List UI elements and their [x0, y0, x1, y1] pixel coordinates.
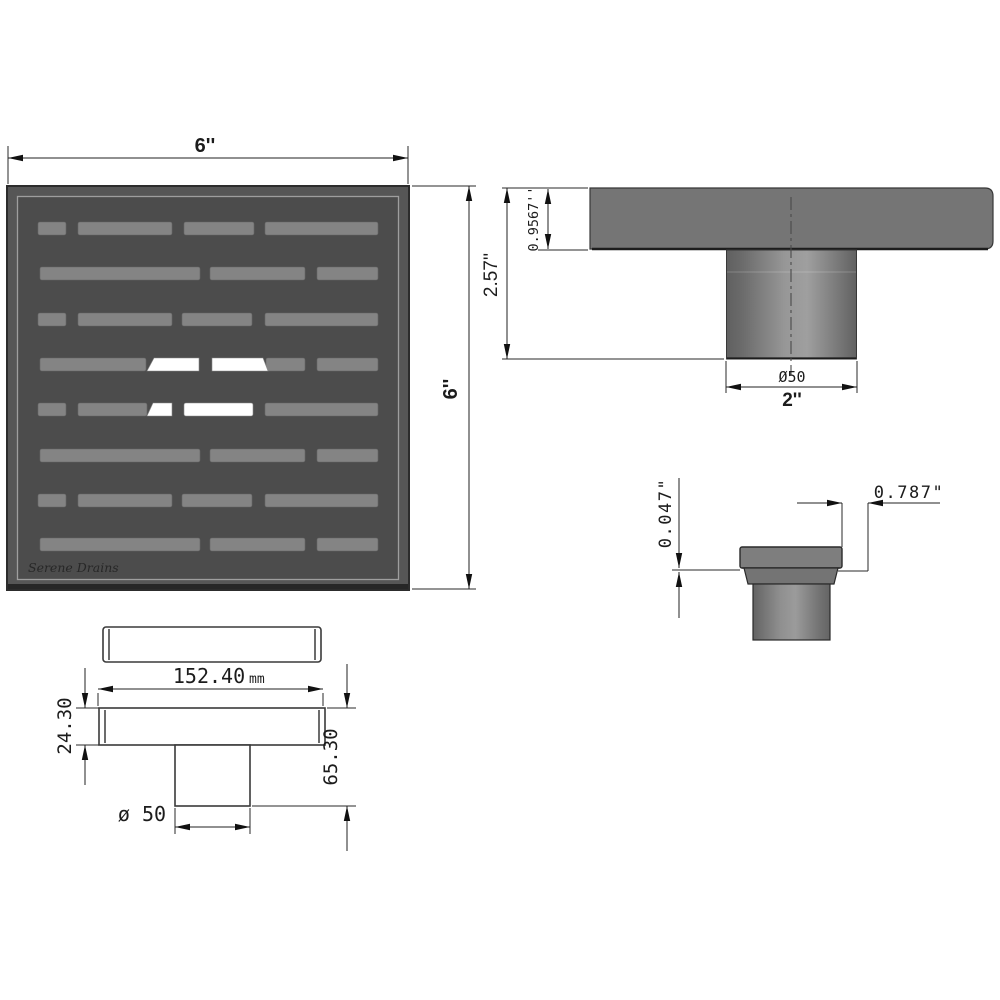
technical-drawing-page: 6'' — [0, 0, 1000, 1000]
grate-slot — [40, 267, 200, 280]
detail-flange — [740, 547, 842, 568]
open-slot — [147, 358, 199, 371]
grate-slot — [317, 538, 378, 551]
bottom-pipe-diameter-label: ø 50 — [118, 802, 166, 826]
grate-slot — [317, 358, 378, 371]
grate-slot — [210, 538, 305, 551]
bottom-total-height-label: 65.30 — [320, 728, 342, 785]
grate-slot — [40, 449, 200, 462]
grate-slot — [265, 222, 378, 235]
grate-slot — [38, 222, 66, 235]
grate-slot — [40, 538, 200, 551]
grate-slot — [265, 403, 378, 416]
drain-drawing-canvas: 6'' — [0, 0, 1000, 1000]
grate-slot — [210, 449, 305, 462]
grate-slot — [265, 494, 378, 507]
grate-slot — [78, 403, 147, 416]
open-slot — [184, 403, 253, 416]
grate-slot — [184, 222, 254, 235]
side-plate-thickness-label: 0.9567'' — [526, 186, 542, 251]
grate-slot — [265, 313, 378, 326]
grate-slot — [38, 403, 66, 416]
top-width-label: 6'' — [195, 135, 216, 157]
pipe-profile — [175, 745, 250, 806]
grate-slot — [78, 313, 172, 326]
grate-slot — [182, 494, 252, 507]
side-outlet-width-label: 2'' — [782, 390, 802, 411]
grate-slot — [38, 313, 66, 326]
grate-slot — [266, 358, 305, 371]
bottom-length-unit-label: mm — [249, 672, 265, 687]
grate-slot — [40, 358, 146, 371]
cover-profile — [103, 627, 321, 662]
top-height-label: 6'' — [440, 379, 462, 400]
top-view: 6'' — [7, 135, 476, 590]
brand-logo: Serene Drains — [28, 560, 119, 575]
detail-lip-height-label: 0.047" — [656, 478, 676, 548]
grate-slot — [182, 313, 252, 326]
grate-slot — [78, 494, 172, 507]
side-total-height-label: 2.57'' — [481, 253, 502, 297]
bottom-body-height-label: 24.30 — [54, 697, 76, 754]
grate-slot — [210, 267, 305, 280]
detail-pipe — [753, 584, 830, 640]
grate-slot — [317, 267, 378, 280]
grate-plate — [18, 197, 399, 580]
body-profile — [99, 708, 325, 745]
detail-edge-offset-label: 0.787" — [874, 483, 944, 503]
grate-slot — [38, 494, 66, 507]
detail-collar — [744, 568, 838, 584]
open-slot — [212, 358, 268, 371]
grate-slot — [317, 449, 378, 462]
side-outlet-diameter-label: Ø50 — [778, 368, 805, 386]
grate-slot — [78, 222, 172, 235]
bottom-length-label: 152.40 — [173, 664, 245, 688]
